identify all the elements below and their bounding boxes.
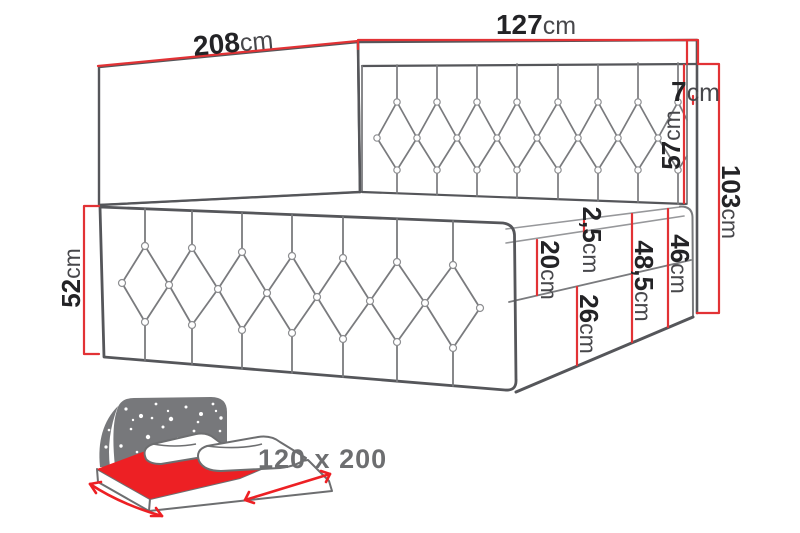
dim-line-127 — [358, 40, 698, 63]
dim-line-52 — [84, 206, 99, 354]
bed-dimension-diagram-page: 208cm 127cm 7cm 57cm 103cm 52cm 2,5cm 20… — [0, 0, 800, 533]
headboard-tufting — [377, 63, 687, 204]
dim-label-7: 7cm — [671, 76, 720, 107]
bed-dimension-diagram: 208cm 127cm 7cm 57cm 103cm 52cm 2,5cm 20… — [0, 0, 800, 533]
dim-label-20: 20cm — [535, 240, 565, 300]
dim-label-26: 26cm — [574, 294, 604, 354]
dim-label-57: 57cm — [656, 110, 686, 170]
dim-label-46: 46cm — [665, 234, 695, 294]
size-label: 120 x 200 — [258, 444, 387, 474]
dim-label-208: 208cm — [192, 23, 275, 62]
dim-label-103: 103cm — [716, 165, 746, 239]
dim-label-127: 127cm — [496, 9, 576, 40]
side-panel — [99, 42, 360, 205]
front-panel — [100, 207, 516, 390]
dim-label-2-5: 2,5cm — [577, 207, 607, 274]
front-panel-tufting — [122, 209, 480, 386]
dim-label-48-5: 48,5cm — [629, 240, 659, 321]
dim-label-52: 52cm — [56, 248, 86, 308]
headboard-buttons — [374, 99, 681, 173]
